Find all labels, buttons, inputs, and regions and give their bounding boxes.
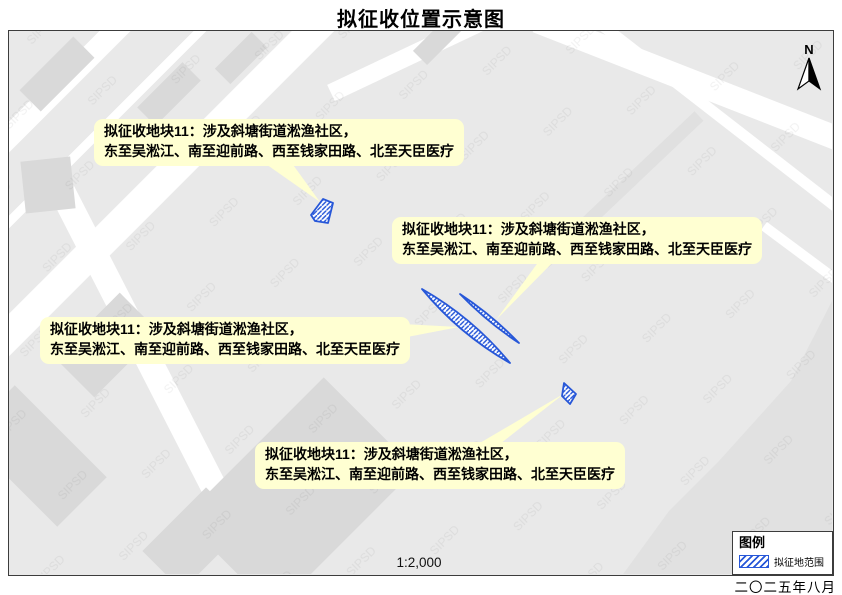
map-frame: SIPSD SIPSD [8,30,834,576]
date-label: 二〇二五年八月 [735,576,837,595]
hatch-swatch-icon [739,555,769,568]
page-title: 拟征收位置示意图 [0,3,842,32]
callout-line2: 东至吴淞江、南至迎前路、西至钱家田路、北至天臣医疗 [50,339,400,359]
legend-item-label: 拟征地范围 [774,554,824,569]
callout-line2: 东至吴淞江、南至迎前路、西至钱家田路、北至天臣医疗 [104,141,454,161]
scale-label: 1:2,000 [369,555,469,570]
callout-line1: 拟征收地块11：涉及斜塘街道淞渔社区， [402,219,752,239]
callout-line1: 拟征收地块11：涉及斜塘街道淞渔社区， [265,444,615,464]
legend-title: 图例 [739,535,826,551]
callout-box-1: 拟征收地块11：涉及斜塘街道淞渔社区， 东至吴淞江、南至迎前路、西至钱家田路、北… [94,119,464,166]
callout-box-4: 拟征收地块11：涉及斜塘街道淞渔社区， 东至吴淞江、南至迎前路、西至钱家田路、北… [255,442,625,489]
map-canvas: SIPSD SIPSD [9,31,832,574]
callout-box-3: 拟征收地块11：涉及斜塘街道淞渔社区， 东至吴淞江、南至迎前路、西至钱家田路、北… [40,317,410,364]
callout-box-2: 拟征收地块11：涉及斜塘街道淞渔社区， 东至吴淞江、南至迎前路、西至钱家田路、北… [392,217,762,264]
callout-line2: 东至吴淞江、南至迎前路、西至钱家田路、北至天臣医疗 [402,239,752,259]
callout-line1: 拟征收地块11：涉及斜塘街道淞渔社区， [104,121,454,141]
callout-line1: 拟征收地块11：涉及斜塘街道淞渔社区， [50,319,400,339]
page: 拟征收位置示意图 SIPSD SIPSD [0,0,842,595]
north-label: N [804,42,813,57]
legend-item: 拟征地范围 [739,554,826,569]
watermark-layer [9,31,832,574]
legend-box: 图例 拟征地范围 [732,531,833,575]
callout-line2: 东至吴淞江、南至迎前路、西至钱家田路、北至天臣医疗 [265,464,615,484]
